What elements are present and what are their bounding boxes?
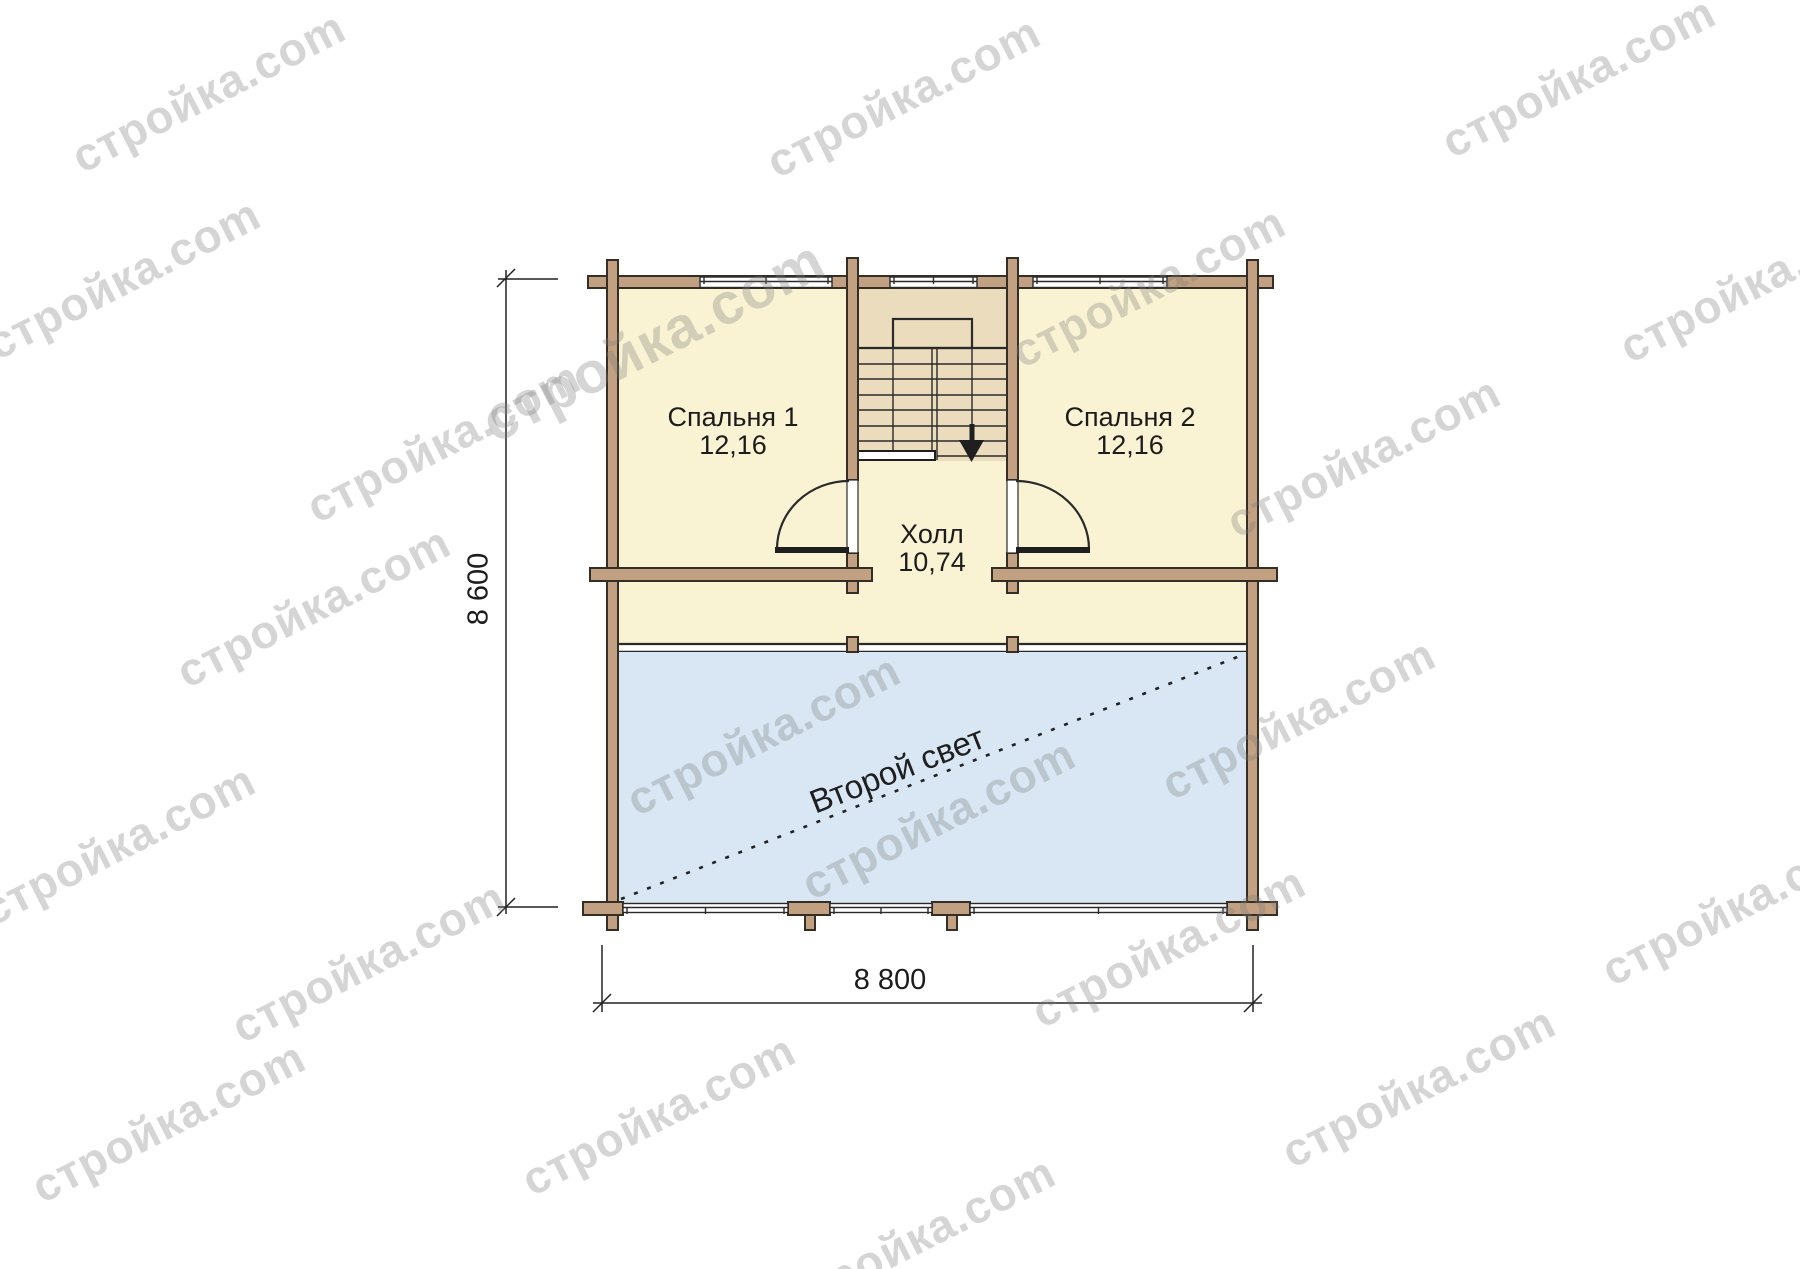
watermark-text: стройка.com — [1273, 995, 1564, 1177]
watermark-text: стройка.com — [23, 1030, 314, 1212]
window — [830, 904, 932, 915]
stair-exit-step — [858, 451, 935, 460]
watermark-text: стройка.com — [0, 187, 269, 369]
windows-bottom — [623, 904, 1227, 915]
stair-direction-arrow-stem — [970, 424, 975, 440]
bedroom2-name-label: Спальня 2 — [1064, 402, 1195, 432]
wall-bottom-segment — [932, 902, 970, 915]
bedroom1-area-label: 12,16 — [699, 430, 767, 460]
window — [623, 904, 788, 915]
door-opening — [847, 480, 858, 553]
hall-name-label: Холл — [900, 519, 964, 549]
wall-bottom-corner-left — [583, 902, 623, 915]
watermark-text: стройка.com — [773, 1145, 1064, 1269]
wall-stair-right-upper — [1007, 258, 1018, 480]
bedroom1-name-label: Спальня 1 — [667, 402, 798, 432]
watermark-text: стройка.com — [1611, 190, 1800, 372]
watermark-text: стройка.com — [513, 1023, 804, 1205]
watermark-text: стройка.com — [63, 0, 354, 182]
door-opening — [1007, 480, 1018, 553]
door-leaf — [775, 547, 849, 553]
floor-plan-drawing: Второй свет 8 600 8 800 Спальня 1 12,16 … — [0, 0, 1800, 1269]
wall-right-post — [1247, 260, 1258, 930]
dimension-label-height: 8 600 — [463, 553, 495, 626]
dimension-label-width: 8 800 — [854, 964, 927, 996]
bedroom2-area-label: 12,16 — [1096, 430, 1164, 460]
wall-middle-beam-left — [590, 568, 872, 581]
railing-post-left — [847, 637, 858, 652]
hall-area-label: 10,74 — [898, 547, 966, 577]
watermark-text: стройка.com — [1218, 365, 1509, 547]
floor-plan-page: Второй свет 8 600 8 800 Спальня 1 12,16 … — [0, 0, 1800, 1269]
watermark-text: стройка.com — [0, 753, 264, 935]
watermark-text: стройка.com — [168, 515, 459, 697]
wall-bottom-stub — [947, 915, 957, 930]
door-leaf — [1016, 547, 1090, 553]
wall-stair-left-upper — [847, 258, 858, 480]
watermark-text: стройка.com — [223, 870, 514, 1052]
watermark-text: стройка.com — [758, 5, 1049, 187]
watermark-text: стройка.com — [1593, 813, 1800, 995]
railing-post-right — [1007, 637, 1018, 652]
watermark-text: стройка.com — [1433, 0, 1724, 168]
wall-middle-beam-right — [992, 568, 1277, 581]
watermark-text: стройка.com — [298, 350, 589, 532]
window — [890, 277, 977, 288]
wall-bottom-stub — [805, 915, 815, 930]
